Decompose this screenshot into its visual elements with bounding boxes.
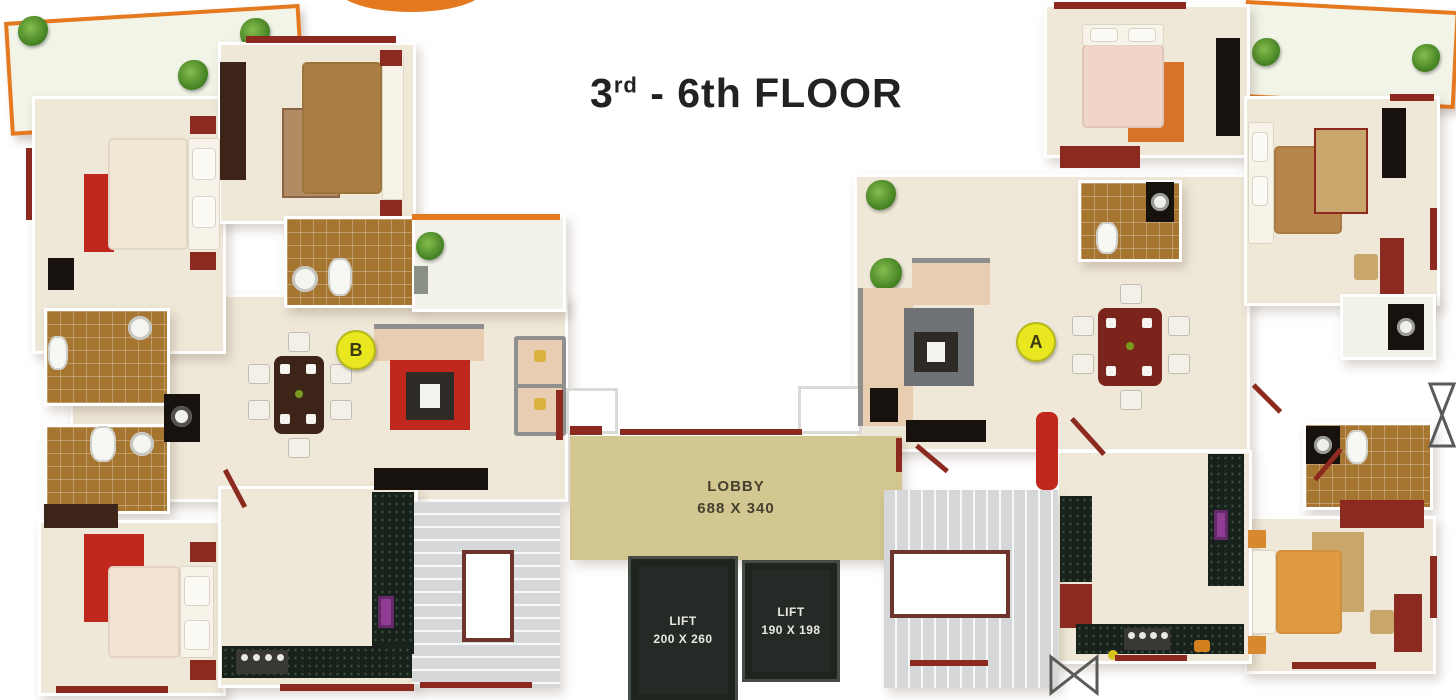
- lobby: LOBBY 688 X 340: [570, 436, 902, 560]
- lift-1-dims: 200 X 260: [653, 630, 712, 648]
- burner: [241, 654, 248, 661]
- lobby-label: LOBBY: [707, 476, 765, 499]
- nightstand: [190, 660, 216, 680]
- bed: [108, 566, 180, 658]
- wall-segment: [910, 660, 988, 666]
- nightstand: [1248, 636, 1266, 654]
- centerpiece: [295, 390, 303, 398]
- basin: [1397, 318, 1415, 336]
- dining-chair: [1072, 316, 1094, 336]
- dining-table-a: [1098, 308, 1162, 386]
- armchair: [514, 336, 566, 388]
- wall-segment: [280, 684, 414, 691]
- plate: [1106, 366, 1116, 376]
- kitchen-sink: [1214, 510, 1228, 540]
- plate: [1142, 366, 1152, 376]
- nightstand: [190, 116, 216, 134]
- kitchen-cabinet: [1060, 584, 1092, 628]
- balcony-b-right: [412, 214, 566, 312]
- title-sup: rd: [614, 72, 638, 97]
- burner: [277, 654, 284, 661]
- bed: [1082, 44, 1164, 128]
- bathroom-b-mid: [284, 216, 416, 308]
- burner: [1150, 632, 1157, 639]
- dining-chair: [1072, 354, 1094, 374]
- lift-2-label: LIFT: [777, 603, 804, 621]
- wall-segment: [56, 686, 168, 693]
- burner: [253, 654, 260, 661]
- plate: [1142, 318, 1152, 328]
- wall-segment: [26, 148, 32, 220]
- dining-chair: [248, 364, 270, 384]
- dining-chair: [288, 438, 310, 458]
- desk: [1380, 238, 1404, 294]
- washer-door: [171, 406, 192, 427]
- wall-segment: [896, 438, 902, 472]
- vanity: [44, 504, 118, 528]
- desk: [1394, 594, 1422, 652]
- lift-2: LIFT 190 X 198: [742, 560, 840, 682]
- wardrobe: [1382, 108, 1406, 178]
- wall-segment: [1430, 208, 1437, 270]
- coffee-table: [914, 332, 958, 372]
- toilet: [1346, 430, 1368, 464]
- wall-segment: [556, 390, 563, 440]
- toilet: [90, 426, 116, 462]
- toilet: [1096, 222, 1118, 254]
- kitchen-counter: [1060, 496, 1092, 582]
- cabinet: [48, 258, 74, 290]
- balcony-rail: [412, 214, 560, 220]
- washbasin: [292, 266, 318, 292]
- bed: [302, 62, 382, 194]
- stove: [236, 650, 288, 674]
- lobby-dims: 688 X 340: [697, 498, 774, 521]
- wall-niche: [798, 386, 862, 434]
- wall-segment: [620, 429, 802, 435]
- title-prefix: 3: [590, 70, 614, 116]
- dining-chair: [1120, 284, 1142, 304]
- page-title: 3rd - 6th FLOOR: [590, 70, 903, 117]
- lift-1-label: LIFT: [669, 612, 696, 630]
- door-swing: [1252, 383, 1282, 413]
- plate: [280, 414, 290, 424]
- dresser: [1340, 500, 1424, 528]
- bed: [1276, 550, 1342, 634]
- bed: [108, 138, 188, 250]
- pillow: [184, 576, 210, 606]
- dining-chair: [288, 332, 310, 352]
- duct-symbol: [1048, 654, 1100, 696]
- pillow: [192, 196, 216, 228]
- marker-a-label: A: [1030, 332, 1043, 353]
- title-rest: - 6th FLOOR: [638, 70, 903, 116]
- wall-segment: [1292, 662, 1376, 669]
- wardrobe: [1216, 38, 1240, 136]
- pillow: [1252, 176, 1268, 206]
- bath-counter: [1388, 304, 1424, 350]
- plate: [306, 364, 316, 374]
- dining-chair: [1168, 354, 1190, 374]
- floor-plan: 3rd - 6th FLOOR LOBBY 688 X 340 LIFT 200…: [0, 0, 1456, 700]
- table-top: [927, 342, 945, 362]
- coffee-table: [406, 372, 454, 420]
- lift-2-dims: 190 X 198: [761, 621, 820, 639]
- wall-segment: [1390, 94, 1434, 101]
- bed-headboard: [382, 56, 404, 200]
- table-top: [420, 384, 439, 408]
- washbasin: [130, 432, 154, 456]
- cushion: [534, 350, 546, 362]
- wall-segment: [420, 682, 532, 688]
- unit-marker-a: A: [1016, 322, 1056, 362]
- chair: [1354, 254, 1378, 280]
- wall-segment: [570, 426, 602, 435]
- burner: [1139, 632, 1146, 639]
- kitchen-pot: [1194, 640, 1210, 652]
- sofa: [374, 324, 484, 361]
- duct-symbol: [1428, 382, 1456, 448]
- wall-segment: [246, 36, 396, 43]
- marker-b-label: B: [350, 340, 363, 361]
- logo-blob: [338, 0, 484, 12]
- dining-chair: [1168, 316, 1190, 336]
- pillow: [1252, 132, 1268, 162]
- cushion: [534, 398, 546, 410]
- side-table: [870, 388, 898, 422]
- toilet: [328, 258, 352, 296]
- bench: [1060, 146, 1140, 168]
- washbasin: [128, 316, 152, 340]
- stair-void: [462, 550, 514, 642]
- plate: [1106, 318, 1116, 328]
- unit-marker-b: B: [336, 330, 376, 370]
- wall-segment: [1430, 556, 1437, 618]
- wardrobe: [220, 62, 246, 180]
- chaise: [1036, 412, 1058, 490]
- pillow: [192, 148, 216, 180]
- plate: [306, 414, 316, 424]
- lift-1: LIFT 200 X 260: [628, 556, 738, 700]
- nightstand: [1248, 530, 1266, 548]
- burner: [1161, 632, 1168, 639]
- chair: [1370, 610, 1394, 634]
- bed-headboard: [1252, 550, 1276, 634]
- dining-table-b: [274, 356, 324, 434]
- wall-segment: [1115, 655, 1187, 661]
- washing-machine: [164, 394, 200, 442]
- nightstand: [190, 252, 216, 270]
- balcony-box: [414, 266, 428, 294]
- bath-counter: [1146, 182, 1174, 222]
- kitchen-sink: [378, 596, 394, 628]
- basin: [1314, 436, 1332, 454]
- sofa-l-section: [912, 258, 990, 305]
- centerpiece: [1126, 342, 1134, 350]
- kitchen-counter: [372, 492, 414, 654]
- basin: [1151, 193, 1169, 211]
- stair-void: [890, 550, 1010, 618]
- wall-segment: [1054, 2, 1186, 9]
- pillow: [184, 620, 210, 650]
- burner: [265, 654, 272, 661]
- tv-unit: [906, 420, 986, 442]
- plate: [280, 364, 290, 374]
- nightstand: [380, 50, 402, 66]
- nightstand: [380, 200, 402, 216]
- dining-chair: [1120, 390, 1142, 410]
- tv-unit: [374, 468, 488, 490]
- toilet: [48, 336, 68, 370]
- pillow: [1090, 28, 1118, 42]
- burner: [1128, 632, 1135, 639]
- rug: [1314, 128, 1368, 214]
- dining-chair: [330, 400, 352, 420]
- nightstand: [190, 542, 216, 562]
- stove: [1124, 628, 1170, 650]
- pillow: [1128, 28, 1156, 42]
- dining-chair: [248, 400, 270, 420]
